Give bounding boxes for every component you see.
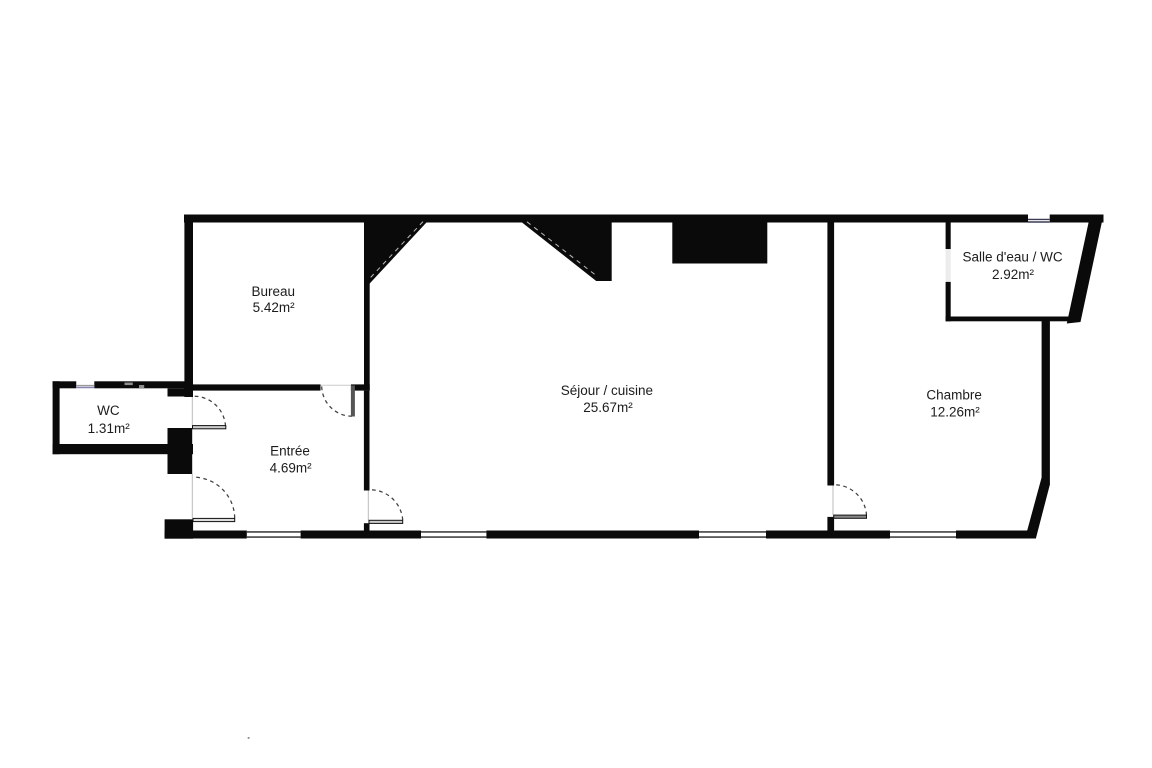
- svg-text:Bureau: Bureau: [252, 284, 296, 299]
- svg-text:Salle d'eau / WC: Salle d'eau / WC: [963, 249, 1063, 264]
- svg-text:4.69m²: 4.69m²: [270, 461, 313, 476]
- svg-text:12.26m²: 12.26m²: [930, 405, 980, 420]
- svg-text:Entrée: Entrée: [270, 443, 310, 458]
- svg-text:5.42m²: 5.42m²: [253, 300, 296, 315]
- svg-text:Chambre: Chambre: [926, 387, 982, 402]
- svg-text:25.67m²: 25.67m²: [583, 400, 633, 415]
- svg-text:WC: WC: [97, 403, 120, 418]
- svg-text:1.31m²: 1.31m²: [88, 421, 131, 436]
- svg-text:2.92m²: 2.92m²: [992, 267, 1035, 282]
- svg-text:Séjour / cuisine: Séjour / cuisine: [561, 383, 653, 398]
